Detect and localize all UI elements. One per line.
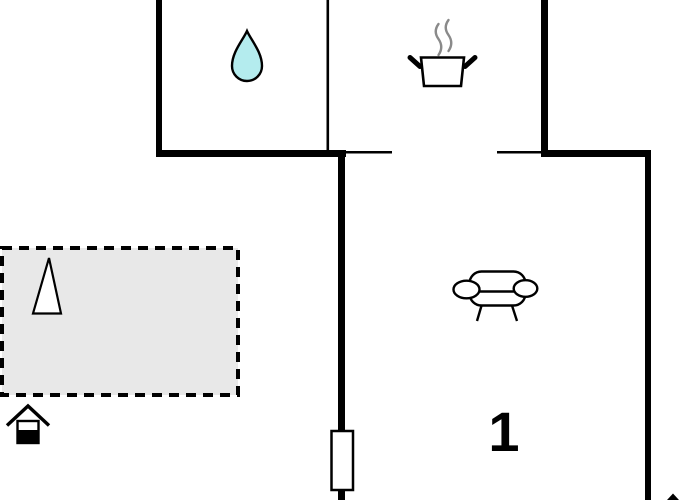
house-body-fill xyxy=(18,430,39,443)
wall-bathroom-bottom xyxy=(156,150,346,157)
cropped-symbol-bottom-right xyxy=(667,494,679,500)
door-symbol xyxy=(332,431,354,490)
steam-wave-right xyxy=(446,20,452,51)
sofa-icon xyxy=(454,272,538,322)
floor-plan-svg: 1 xyxy=(0,0,700,500)
pot-body xyxy=(421,58,464,87)
steam-wave-left xyxy=(436,24,442,55)
opening-line-left xyxy=(345,151,392,154)
wall-bathroom-left xyxy=(156,0,162,157)
wall-living-top xyxy=(541,150,651,157)
floor-plan-canvas: 1 xyxy=(0,0,700,500)
water-drop-icon xyxy=(232,31,262,81)
unit-number-label: 1 xyxy=(488,400,519,463)
partition-bathroom-kitchen xyxy=(327,0,330,152)
entrance-house-icon xyxy=(7,406,49,443)
pot-handle-right xyxy=(465,58,475,67)
terrace xyxy=(2,248,238,395)
terrace-area xyxy=(2,248,238,395)
sofa-armrest-right xyxy=(514,280,538,297)
cooking-pot-icon xyxy=(410,20,475,86)
sofa-armrest-left xyxy=(454,281,480,299)
pot-handle-left xyxy=(410,58,420,67)
wall-kitchen-right xyxy=(541,0,548,157)
opening-line-right xyxy=(497,151,545,154)
wall-living-right xyxy=(645,150,651,500)
